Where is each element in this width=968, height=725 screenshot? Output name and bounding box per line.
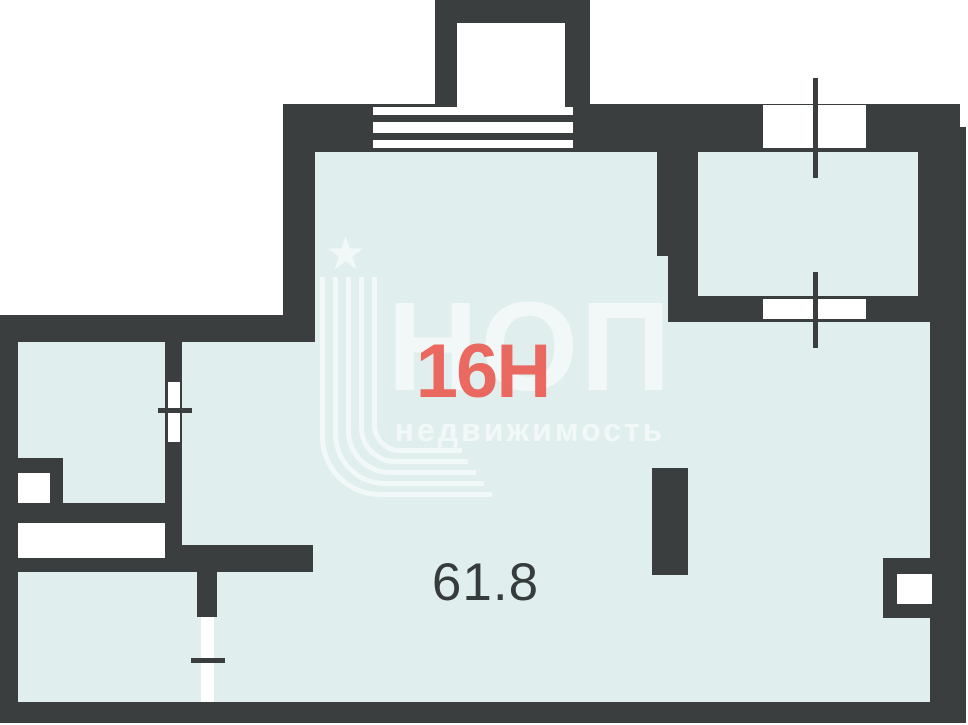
window-icon (158, 382, 192, 442)
wall-segment (165, 342, 182, 572)
wall-segment (0, 503, 182, 523)
wall-segment (283, 104, 315, 342)
column (652, 468, 688, 575)
duct-opening (18, 523, 163, 558)
floor-plan: ★ НОП недвижимость 16Н 61.8 (0, 0, 968, 725)
wall-segment (565, 0, 590, 107)
shaft-opening (18, 473, 50, 503)
star-icon: ★ (325, 230, 366, 276)
wall-segment (50, 473, 63, 503)
wall-segment (18, 458, 63, 473)
wall-segment (657, 104, 698, 256)
wall-segment (165, 545, 313, 572)
area-value: 61.8 (398, 556, 573, 609)
porch-opening (457, 23, 565, 107)
window-icon (763, 78, 866, 178)
wall-segment (0, 702, 966, 723)
watermark-tagline: недвижимость (330, 414, 730, 446)
window-icon (191, 617, 225, 702)
unit-label: 16Н (390, 334, 575, 410)
wall-segment (918, 127, 966, 322)
wall-segment (197, 572, 217, 617)
wall-segment (930, 322, 966, 723)
wall-segment (0, 315, 310, 342)
wall-segment (0, 558, 167, 572)
window-icon (763, 272, 866, 348)
shaft-opening (897, 574, 932, 604)
bottom-left-room-floor (18, 572, 197, 702)
stairs-icon (373, 107, 573, 148)
